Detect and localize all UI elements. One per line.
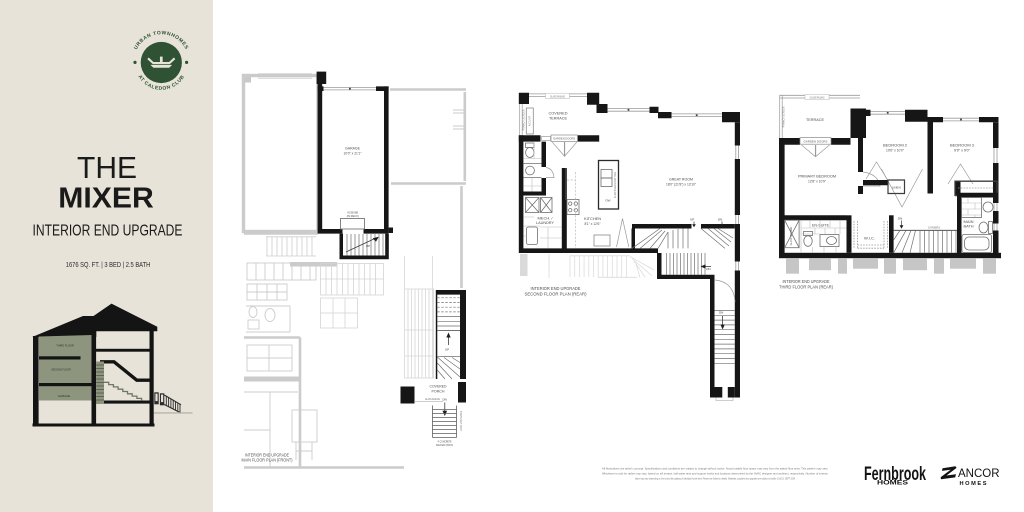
svg-text:HOMES: HOMES	[877, 479, 909, 486]
svg-text:(IN RECO): (IN RECO)	[347, 214, 359, 218]
svg-text:DN: DN	[707, 267, 711, 271]
svg-text:THE: THE	[77, 151, 137, 185]
svg-text:PRIVACY SCREEN: PRIVACY SCREEN	[523, 109, 526, 130]
svg-text:MECH. /: MECH. /	[538, 216, 553, 220]
svg-text:SECOND FLOOR PLAN (REAR): SECOND FLOOR PLAN (REAR)	[525, 292, 588, 297]
svg-text:ANCOR: ANCOR	[958, 466, 1000, 480]
svg-text:LINEN: LINEN	[892, 186, 901, 190]
svg-text:INTERIOR END UPGRADE: INTERIOR END UPGRADE	[245, 452, 289, 457]
svg-text:10'0" x 21'1": 10'0" x 21'1"	[344, 152, 362, 156]
svg-text:STEPS MAY VARY: STEPS MAY VARY	[459, 411, 462, 432]
svg-text:TERRACE: TERRACE	[806, 117, 824, 122]
svg-text:DN: DN	[719, 311, 723, 315]
svg-text:GLASS RAILING: GLASS RAILING	[425, 398, 440, 401]
svg-text:12'8" x 10'9": 12'8" x 10'9"	[808, 180, 826, 184]
svg-text:BATH: BATH	[964, 225, 975, 229]
svg-text:KITCHEN: KITCHEN	[584, 217, 601, 221]
svg-text:DN: DN	[443, 398, 447, 402]
svg-text:PRIVACY SCREEN: PRIVACY SCREEN	[783, 106, 786, 127]
svg-text:GARDEN DOORS: GARDEN DOORS	[804, 139, 828, 143]
svg-text:PORCH: PORCH	[432, 389, 445, 393]
svg-text:EN-SUITE: EN-SUITE	[812, 224, 830, 228]
svg-text:UP: UP	[445, 348, 449, 352]
svg-text:GLASS RAILING: GLASS RAILING	[550, 95, 565, 98]
svg-text:GLASS SHOWER: GLASS SHOWER	[790, 226, 793, 245]
svg-text:1676 SQ. FT. | 3 BED | 2.5: 1676 SQ. FT. | 3 BED | 2.5 BATH	[66, 260, 151, 269]
svg-text:INTERIOR END UPGRADE: INTERIOR END UPGRADE	[33, 223, 183, 240]
svg-text:10'6" x 10'0": 10'6" x 10'0"	[886, 149, 904, 153]
svg-text:GARAGE: GARAGE	[58, 394, 71, 398]
svg-text:All illustrations are artist's: All illustrations are artist's concept. …	[602, 467, 828, 471]
svg-text:DW: DW	[606, 199, 611, 203]
svg-text:THIRD FLOOR PLAN (REAR): THIRD FLOOR PLAN (REAR)	[779, 284, 834, 289]
svg-text:steps may vary depending on th: steps may vary depending on the lot and …	[635, 477, 795, 481]
svg-text:SECOND FLOOR: SECOND FLOOR	[51, 368, 71, 372]
svg-text:THIRD FLOOR: THIRD FLOOR	[56, 344, 74, 348]
svg-text:INTERIOR END UPGRADE: INTERIOR END UPGRADE	[783, 279, 830, 284]
svg-text:MAIN: MAIN	[964, 220, 975, 224]
svg-text:PRIMARY BEDROOM: PRIMARY BEDROOM	[798, 175, 836, 179]
svg-text:UP: UP	[366, 244, 370, 248]
svg-text:MAIN FLOOR PLAN (FRONT): MAIN FLOOR PLAN (FRONT)	[242, 458, 294, 463]
svg-text:GARDEN DOORS: GARDEN DOORS	[553, 137, 575, 141]
svg-text:BEDROOM 3: BEDROOM 3	[950, 144, 974, 148]
svg-text:TERRACE: TERRACE	[549, 116, 567, 121]
svg-text:DN: DN	[718, 218, 722, 222]
svg-text:WALKWAY (PATIO): WALKWAY (PATIO)	[436, 443, 453, 447]
svg-text:Whichever is sold for rather m: Whichever is sold for rather may vary, b…	[602, 472, 828, 476]
svg-text:SLAB BREAKFAST BAR: SLAB BREAKFAST BAR	[614, 172, 617, 199]
svg-text:H O M E S: H O M E S	[960, 481, 987, 487]
svg-text:DN: DN	[898, 217, 902, 221]
svg-text:BEDROOM 2: BEDROOM 2	[883, 144, 907, 148]
svg-text:8'1" x 12'6": 8'1" x 12'6"	[585, 222, 601, 226]
svg-text:INTERIOR END UPGRADE: INTERIOR END UPGRADE	[531, 286, 581, 291]
svg-text:LAUNDRY: LAUNDRY	[536, 221, 555, 225]
svg-text:19 RISERS: 19 RISERS	[928, 227, 940, 229]
svg-text:COVERED: COVERED	[430, 385, 447, 389]
svg-text:GLASS RAILING: GLASS RAILING	[810, 97, 825, 100]
svg-text:GREAT ROOM: GREAT ROOM	[669, 178, 693, 182]
svg-text:MIXER: MIXER	[58, 183, 154, 215]
svg-text:18'0" (21'8") x 13'10": 18'0" (21'8") x 13'10"	[666, 183, 696, 187]
svg-text:A/C UNIT: A/C UNIT	[528, 115, 531, 126]
svg-text:9'9" x 9'0": 9'9" x 9'0"	[954, 149, 970, 153]
svg-text:UP: UP	[690, 218, 694, 222]
svg-text:W.I.C.: W.I.C.	[864, 237, 875, 241]
svg-text:GARAGE: GARAGE	[345, 147, 361, 151]
